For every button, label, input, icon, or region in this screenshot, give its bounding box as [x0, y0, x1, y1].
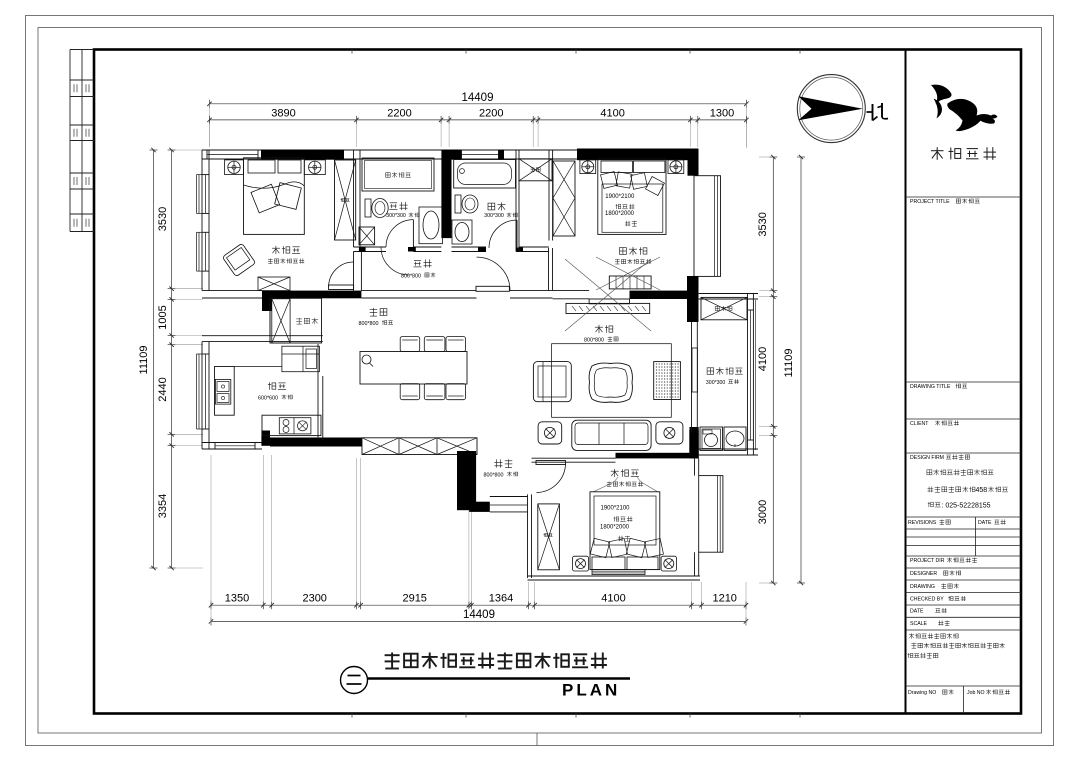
svg-text:1210: 1210: [712, 592, 736, 604]
svg-text:DESIGN FIRM: DESIGN FIRM: [910, 455, 944, 461]
svg-text:1900*2100: 1900*2100: [600, 506, 630, 512]
svg-text:3890: 3890: [271, 107, 295, 119]
svg-text:PLAN: PLAN: [562, 681, 620, 700]
svg-text:3354: 3354: [157, 494, 169, 518]
svg-text:11109: 11109: [138, 346, 150, 375]
svg-text:4100: 4100: [600, 107, 624, 119]
svg-text:11109: 11109: [783, 349, 795, 378]
svg-text:1350: 1350: [225, 592, 249, 604]
svg-text:14409: 14409: [462, 92, 494, 104]
svg-text:14409: 14409: [463, 609, 495, 621]
svg-text:3000: 3000: [757, 500, 769, 524]
svg-text:800*800: 800*800: [584, 338, 604, 344]
svg-text:800*800: 800*800: [358, 321, 378, 327]
svg-text:2440: 2440: [157, 377, 169, 401]
svg-text:CHECKED BY: CHECKED BY: [910, 597, 944, 603]
svg-text:4100: 4100: [757, 347, 769, 371]
svg-text:PROJECT TITLE: PROJECT TITLE: [910, 199, 950, 205]
svg-text:DRAWING: DRAWING: [910, 584, 935, 590]
svg-text:DESIGNER: DESIGNER: [910, 571, 937, 577]
svg-text:458: 458: [976, 487, 988, 494]
svg-text:Job NO: Job NO: [967, 690, 985, 696]
svg-text:3530: 3530: [757, 212, 769, 236]
svg-text:1800*2000: 1800*2000: [605, 211, 635, 217]
svg-text:DATE: DATE: [910, 609, 924, 615]
svg-text:2200: 2200: [387, 107, 411, 119]
svg-text:1800*2000: 1800*2000: [600, 525, 630, 531]
svg-text:800*800: 800*800: [401, 274, 421, 280]
svg-text:SCALE: SCALE: [910, 621, 928, 627]
svg-text:REVISIONS: REVISIONS: [908, 520, 937, 526]
svg-text:1364: 1364: [489, 592, 513, 604]
svg-text:600*600: 600*600: [258, 396, 278, 402]
svg-text:2200: 2200: [479, 107, 503, 119]
svg-text:2915: 2915: [402, 592, 426, 604]
svg-text:DRAWING TITLE: DRAWING TITLE: [910, 384, 951, 390]
svg-text:300*300: 300*300: [484, 213, 504, 219]
svg-text:2300: 2300: [302, 592, 326, 604]
svg-text:800*800: 800*800: [483, 473, 503, 479]
svg-text:1005: 1005: [157, 305, 169, 329]
svg-text:300*300: 300*300: [706, 380, 725, 386]
svg-text:Drawing NO: Drawing NO: [908, 690, 936, 696]
svg-text:300*300: 300*300: [386, 213, 406, 219]
svg-text:: 025-52228155: : 025-52228155: [942, 502, 991, 509]
svg-text:3530: 3530: [157, 207, 169, 231]
svg-text:4100: 4100: [601, 592, 625, 604]
svg-text:PROJECT DIR: PROJECT DIR: [910, 558, 945, 564]
svg-text:CLIENT: CLIENT: [910, 421, 929, 427]
svg-text:DATE: DATE: [978, 520, 992, 526]
svg-text:1900*2100: 1900*2100: [605, 194, 635, 200]
svg-text:1300: 1300: [710, 107, 734, 119]
